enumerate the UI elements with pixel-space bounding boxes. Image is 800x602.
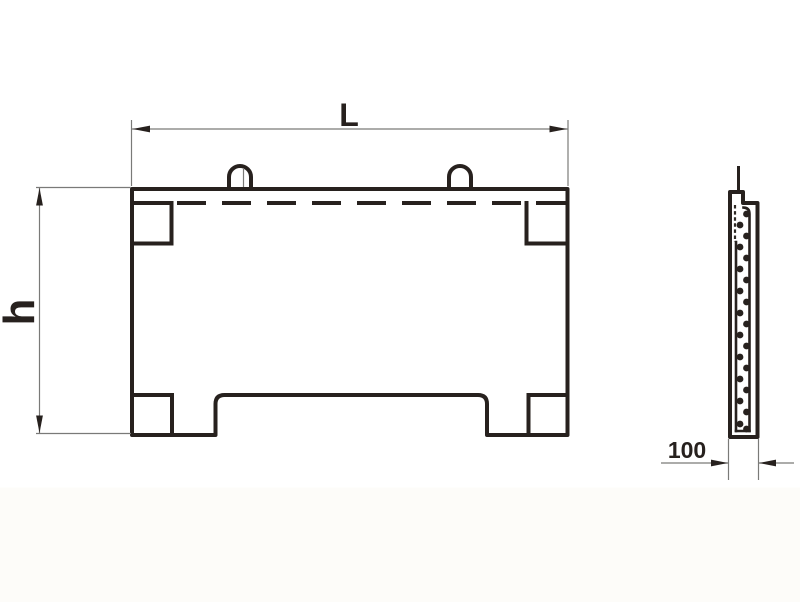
panel-side-view [730, 166, 758, 437]
reinforcement-dot [743, 321, 750, 328]
dimension-length: L [132, 97, 569, 186]
reinforcement-dot [743, 299, 750, 306]
corner-notch-top-left [132, 203, 172, 244]
reinforcement-dot [737, 310, 744, 317]
arrowhead-top [36, 188, 43, 206]
reinforcement-dot [737, 332, 744, 339]
arrowhead-right [759, 460, 776, 467]
lifting-loop-right [449, 166, 471, 188]
technical-drawing-canvas: L h [0, 0, 800, 602]
reinforcement-dot [743, 211, 750, 218]
section-outline [730, 192, 758, 437]
notch-side-bottom [527, 203, 568, 244]
reinforcement-dot [737, 266, 744, 273]
reinforcement-dots [737, 211, 750, 433]
dimension-label-height: h [0, 299, 44, 326]
arrowhead-left [133, 126, 151, 133]
reinforcement-dot [737, 222, 744, 229]
reinforcement-dot [743, 255, 750, 262]
arrowhead-right [550, 126, 568, 133]
reinforcement-dot [737, 376, 744, 383]
reinforcement-dot [743, 365, 750, 372]
dimension-height: h [0, 188, 131, 434]
reinforcement-dot [743, 409, 750, 416]
reinforcement-dot [737, 244, 744, 251]
corner-notch-top-right [527, 203, 568, 244]
reinforcement-dot [743, 343, 750, 350]
reinforcement-dot [743, 233, 750, 240]
reinforcement-dot [743, 387, 750, 394]
reinforcement-dot [737, 398, 744, 405]
lifting-loop-left [229, 166, 251, 188]
reinforcement-dot [743, 426, 750, 433]
dimension-label-length: L [339, 97, 359, 133]
reinforcement-dot [743, 277, 750, 284]
dimension-label-thickness: 100 [668, 437, 706, 463]
arrowhead-left [711, 460, 728, 467]
dimension-thickness: 100 [661, 437, 794, 480]
inner-line-right [744, 208, 750, 432]
corner-notch-bottom-left [132, 395, 172, 435]
panel-front-view [132, 166, 568, 435]
reinforcement-dot [737, 288, 744, 295]
reinforcement-dot [737, 421, 744, 428]
panel-outline [132, 189, 568, 435]
reinforcement-dot [737, 354, 744, 361]
corner-notch-bottom-right [529, 395, 568, 435]
arrowhead-bottom [36, 416, 43, 434]
